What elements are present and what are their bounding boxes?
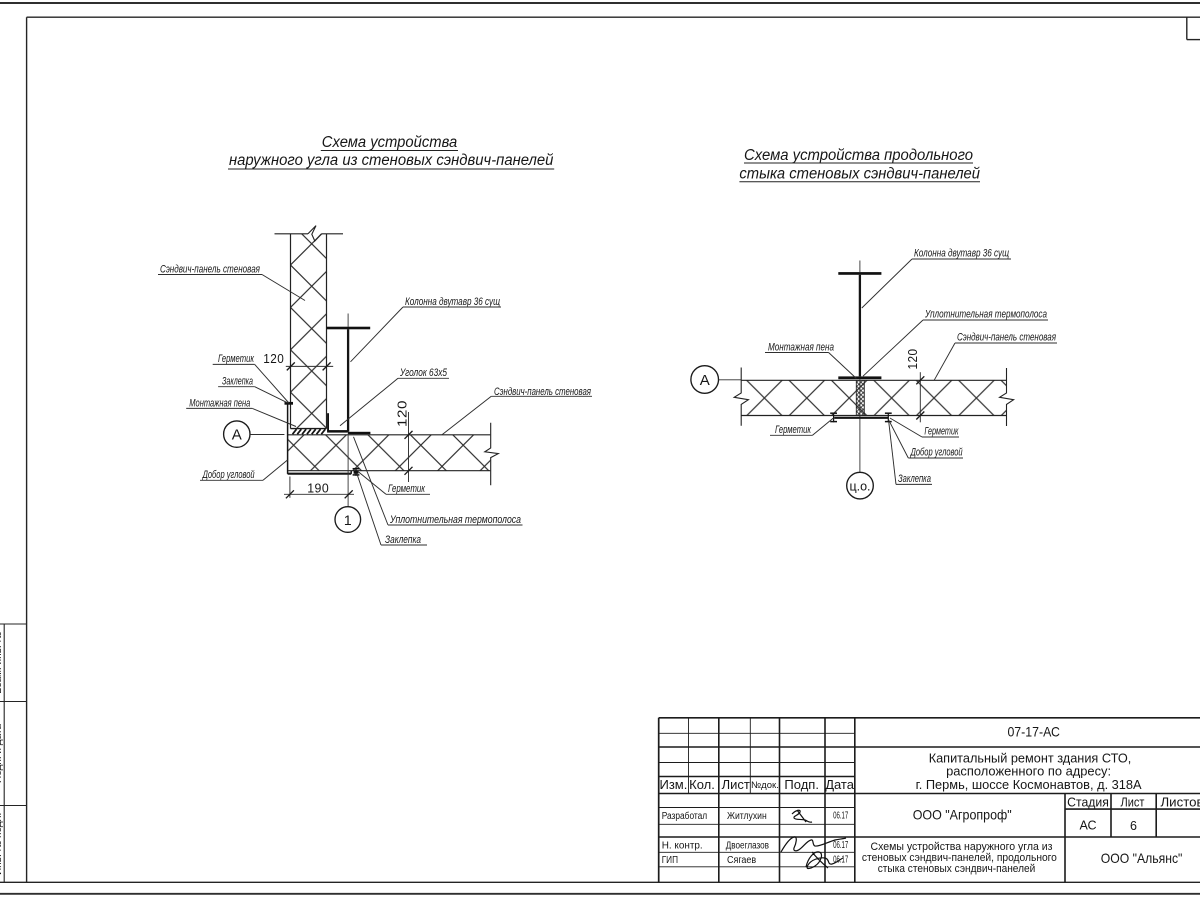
svg-text:Сэндвич-панель стеновая: Сэндвич-панель стеновая <box>160 264 260 276</box>
svg-text:ООО "Агропроф": ООО "Агропроф" <box>913 806 1012 822</box>
svg-text:Монтажная пена: Монтажная пена <box>189 397 250 409</box>
svg-text:наружного угла из стеновых сэн: наружного угла из стеновых сэндвич-панел… <box>229 152 554 169</box>
svg-text:Кол.: Кол. <box>689 777 715 792</box>
svg-text:АС: АС <box>1079 819 1096 833</box>
svg-text:Лист: Лист <box>722 777 750 792</box>
svg-text:06.17: 06.17 <box>833 811 848 822</box>
svg-text:120: 120 <box>394 400 409 427</box>
svg-text:6: 6 <box>1130 819 1137 833</box>
svg-text:Стадия: Стадия <box>1067 796 1109 810</box>
svg-text:Герметик: Герметик <box>775 424 812 436</box>
svg-text:стыка стеновых сэндвич-панелей: стыка стеновых сэндвич-панелей <box>878 863 1036 875</box>
svg-text:Герметик: Герметик <box>218 353 255 365</box>
svg-text:Заклепка: Заклепка <box>222 376 253 388</box>
svg-text:1: 1 <box>344 512 352 528</box>
svg-text:№док.: №док. <box>751 780 779 791</box>
svg-text:190: 190 <box>307 481 329 496</box>
svg-text:Двоеглазов: Двоеглазов <box>726 841 769 852</box>
svg-text:Н. контр.: Н. контр. <box>662 841 703 852</box>
svg-text:Разработал: Разработал <box>662 810 708 822</box>
svg-text:Сягаев: Сягаев <box>727 855 756 866</box>
svg-text:Герметик: Герметик <box>388 483 426 495</box>
svg-text:Колонна двутавр 36 сущ: Колонна двутавр 36 сущ <box>405 296 500 308</box>
svg-text:Лист: Лист <box>1121 796 1145 810</box>
svg-text:07-17-АС: 07-17-АС <box>1007 724 1060 740</box>
svg-text:Взам. инв. №: Взам. инв. № <box>0 632 4 694</box>
svg-text:Уплотнительная термополоса: Уплотнительная термополоса <box>389 514 521 526</box>
svg-text:Колонна двутавр 36 сущ: Колонна двутавр 36 сущ <box>914 248 1009 260</box>
svg-text:Листов: Листов <box>1161 796 1200 810</box>
svg-text:Добор угловой: Добор угловой <box>201 469 254 481</box>
svg-text:стыка стеновых сэндвич-панелей: стыка стеновых сэндвич-панелей <box>739 166 980 183</box>
svg-text:Сэндвич-панель стеновая: Сэндвич-панель стеновая <box>957 331 1056 343</box>
svg-text:120: 120 <box>263 351 284 366</box>
svg-text:Инв. № подл.: Инв. № подл. <box>0 813 4 875</box>
svg-text:Заклепка: Заклепка <box>385 534 421 546</box>
svg-text:Подп. и дата: Подп. и дата <box>0 724 4 783</box>
svg-text:Заклепка: Заклепка <box>898 473 931 485</box>
svg-text:Схема устройства продольного: Схема устройства продольного <box>744 147 973 164</box>
svg-text:Схема устройства: Схема устройства <box>322 134 458 151</box>
svg-text:06.17: 06.17 <box>833 840 848 851</box>
svg-text:Житлухин: Житлухин <box>727 811 767 822</box>
svg-text:Подп.: Подп. <box>784 777 819 792</box>
svg-text:г. Пермь, шоссе Космонавтов, д: г. Пермь, шоссе Космонавтов, д. 318А <box>916 777 1142 792</box>
svg-text:ц.о.: ц.о. <box>849 479 870 493</box>
svg-text:А: А <box>232 426 242 443</box>
svg-text:Добор угловой: Добор угловой <box>909 446 962 458</box>
svg-text:06.17: 06.17 <box>833 855 848 866</box>
svg-text:Герметик: Герметик <box>924 425 959 437</box>
svg-text:ООО "Альянс": ООО "Альянс" <box>1101 850 1183 866</box>
svg-text:120: 120 <box>905 349 920 370</box>
svg-text:Дата: Дата <box>825 777 855 792</box>
svg-text:Уголок 63х5: Уголок 63х5 <box>399 367 447 379</box>
svg-text:ГИП: ГИП <box>662 855 678 866</box>
svg-text:Монтажная пена: Монтажная пена <box>768 341 834 353</box>
svg-text:А: А <box>700 372 710 389</box>
svg-text:Изм.: Изм. <box>659 777 687 792</box>
svg-text:Уплотнительная термополоса: Уплотнительная термополоса <box>924 308 1047 320</box>
